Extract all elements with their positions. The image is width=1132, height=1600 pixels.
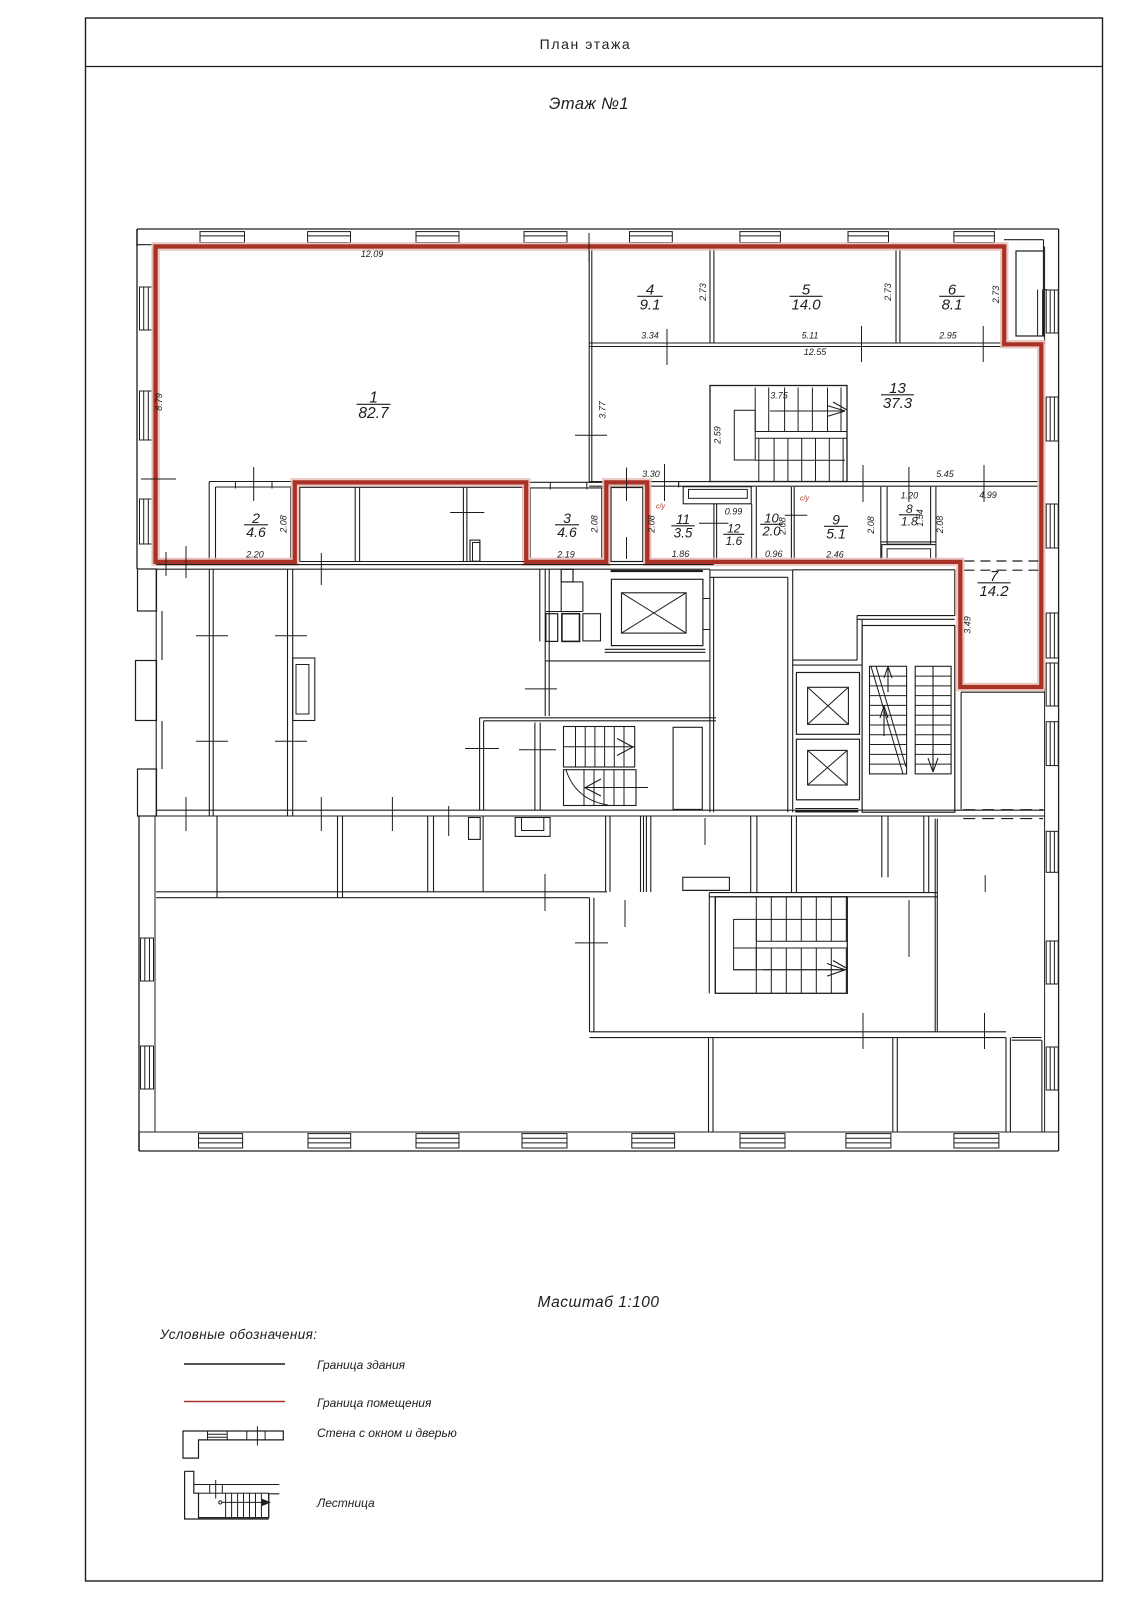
svg-text:12.09: 12.09 (361, 249, 384, 259)
svg-text:3.75: 3.75 (770, 391, 789, 401)
svg-text:37.3: 37.3 (883, 395, 913, 412)
svg-text:14.0: 14.0 (791, 297, 821, 314)
svg-text:3.77: 3.77 (598, 400, 608, 419)
svg-text:12.55: 12.55 (804, 347, 828, 357)
svg-text:5.11: 5.11 (802, 331, 819, 341)
svg-text:План этажа: План этажа (540, 36, 632, 52)
svg-text:3.5: 3.5 (674, 526, 693, 541)
svg-text:1.54: 1.54 (915, 509, 925, 527)
svg-text:1.86: 1.86 (672, 549, 690, 559)
svg-text:2.08: 2.08 (647, 515, 657, 534)
svg-text:5.45: 5.45 (936, 469, 955, 479)
svg-text:14.2: 14.2 (979, 583, 1009, 600)
svg-text:Лестница: Лестница (316, 1496, 375, 1510)
svg-text:8.1: 8.1 (942, 297, 963, 314)
svg-text:2.08: 2.08 (866, 516, 876, 535)
svg-text:2.08: 2.08 (935, 516, 945, 535)
svg-text:3.34: 3.34 (641, 331, 659, 341)
svg-text:с/у: с/у (656, 504, 665, 511)
svg-text:Граница помещения: Граница помещения (317, 1396, 432, 1410)
svg-text:4.99: 4.99 (979, 490, 997, 500)
svg-text:82.7: 82.7 (358, 405, 390, 422)
svg-text:Граница здания: Граница здания (317, 1358, 406, 1372)
svg-text:2.73: 2.73 (883, 283, 893, 302)
svg-text:Этаж №1: Этаж №1 (549, 95, 629, 113)
svg-text:3.30: 3.30 (642, 469, 660, 479)
svg-text:с/у: с/у (800, 496, 809, 503)
svg-text:2.46: 2.46 (825, 550, 844, 560)
svg-text:2.20: 2.20 (245, 550, 264, 560)
svg-text:3.49: 3.49 (963, 616, 973, 634)
svg-text:2.59: 2.59 (713, 426, 723, 445)
svg-text:2.08: 2.08 (279, 515, 289, 534)
svg-text:2.19: 2.19 (556, 550, 575, 560)
svg-text:Условные обозначения:: Условные обозначения: (159, 1327, 317, 1342)
svg-text:8.79: 8.79 (154, 393, 164, 411)
svg-text:2.08: 2.08 (777, 517, 787, 536)
svg-text:0.99: 0.99 (725, 507, 743, 517)
svg-text:2.73: 2.73 (991, 286, 1001, 305)
svg-text:2.73: 2.73 (698, 283, 708, 302)
svg-text:4.6: 4.6 (557, 524, 577, 540)
svg-text:0.96: 0.96 (765, 549, 783, 559)
svg-text:2.08: 2.08 (590, 515, 600, 534)
svg-text:Масштаб 1:100: Масштаб 1:100 (538, 1294, 660, 1311)
svg-text:1.20: 1.20 (901, 491, 919, 501)
svg-text:4.6: 4.6 (246, 524, 266, 540)
svg-text:1.6: 1.6 (725, 534, 742, 548)
svg-text:2.95: 2.95 (938, 331, 958, 341)
svg-text:Стена с окном и дверью: Стена с окном и дверью (317, 1426, 457, 1440)
svg-text:9.1: 9.1 (640, 297, 661, 314)
svg-text:5.1: 5.1 (826, 526, 845, 542)
